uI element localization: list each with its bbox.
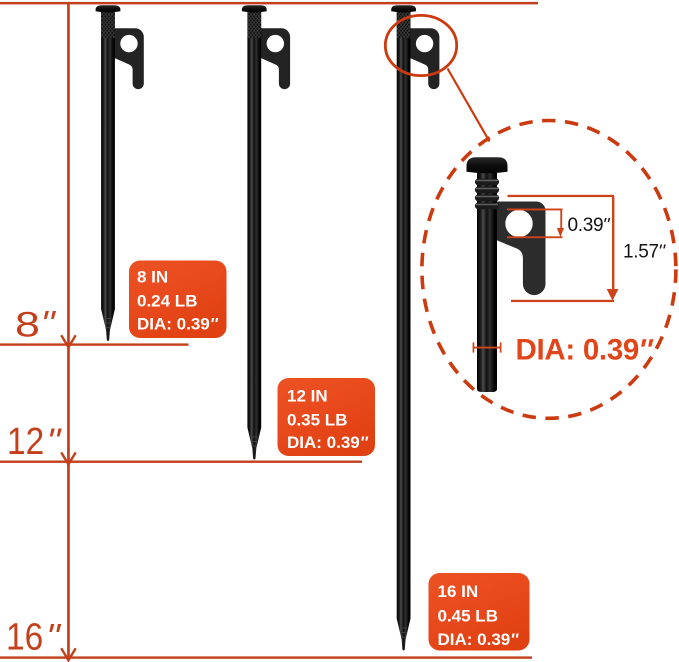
svg-text:DIA: 0.39'': DIA: 0.39'' <box>438 630 520 649</box>
svg-text:12: 12 <box>7 420 44 462</box>
svg-text:DIA: 0.39'': DIA: 0.39'' <box>137 315 219 334</box>
svg-text:0.24 LB: 0.24 LB <box>137 292 197 311</box>
svg-text:0.45 LB: 0.45 LB <box>438 607 498 626</box>
svg-text:16: 16 <box>6 615 43 657</box>
svg-text:12 IN: 12 IN <box>287 387 328 406</box>
svg-text:16 IN: 16 IN <box>438 582 479 601</box>
svg-text:8 IN: 8 IN <box>137 268 168 287</box>
svg-text:DIA: 0.39'': DIA: 0.39'' <box>287 433 369 452</box>
svg-text:1.57: 1.57 <box>623 242 659 263</box>
svg-text:DIA: 0.39: DIA: 0.39 <box>516 334 640 367</box>
svg-text:0.39: 0.39 <box>568 215 604 236</box>
svg-text:0.35 LB: 0.35 LB <box>287 411 347 430</box>
